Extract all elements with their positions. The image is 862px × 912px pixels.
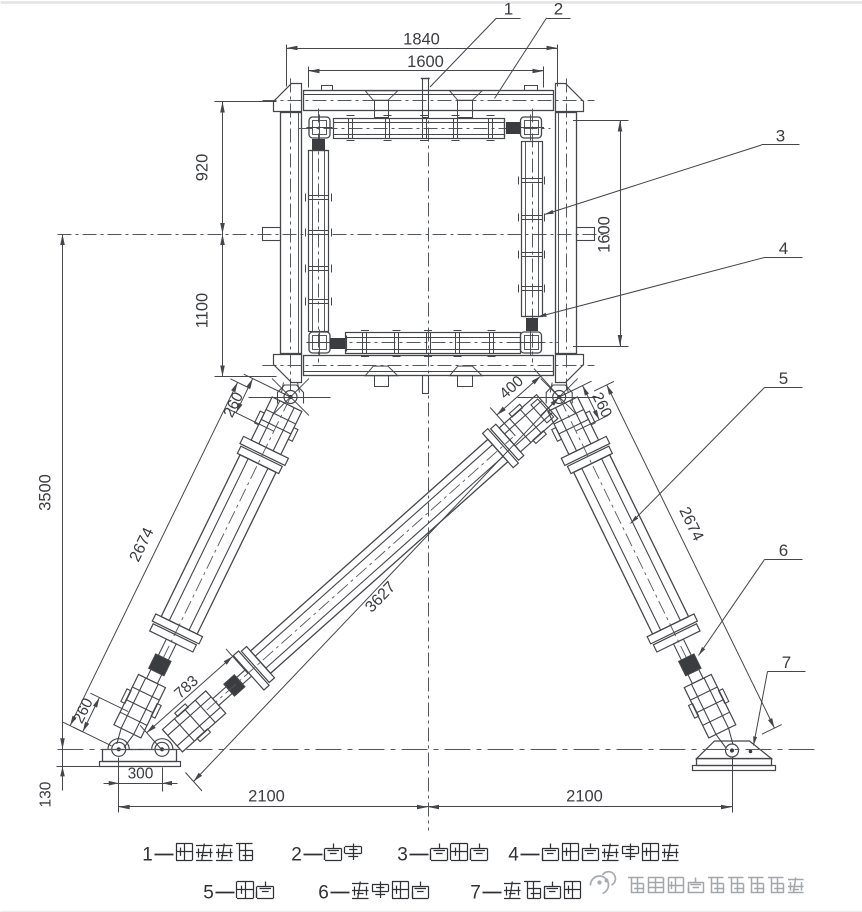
svg-text:6: 6 <box>779 541 788 560</box>
svg-text:4: 4 <box>508 845 519 866</box>
svg-text:2: 2 <box>554 0 563 19</box>
svg-text:3: 3 <box>397 845 408 866</box>
svg-text:6: 6 <box>318 883 329 904</box>
svg-text:7: 7 <box>470 883 481 904</box>
svg-text:2100: 2100 <box>248 788 285 806</box>
svg-text:5: 5 <box>203 883 214 904</box>
svg-text:1600: 1600 <box>596 216 614 253</box>
svg-text:1: 1 <box>142 845 153 866</box>
svg-text:1840: 1840 <box>403 31 440 49</box>
svg-text:5: 5 <box>779 369 788 388</box>
svg-text:2100: 2100 <box>566 788 603 806</box>
svg-text:4: 4 <box>779 239 788 258</box>
svg-text:1: 1 <box>504 0 513 19</box>
svg-text:920: 920 <box>194 154 212 182</box>
svg-text:3500: 3500 <box>37 474 55 511</box>
svg-text:300: 300 <box>128 766 154 783</box>
svg-text:1100: 1100 <box>194 293 212 328</box>
svg-text:3: 3 <box>776 127 785 146</box>
svg-text:130: 130 <box>38 781 55 807</box>
svg-text:1600: 1600 <box>407 53 444 71</box>
svg-text:7: 7 <box>782 653 791 672</box>
svg-text:2: 2 <box>291 845 302 866</box>
